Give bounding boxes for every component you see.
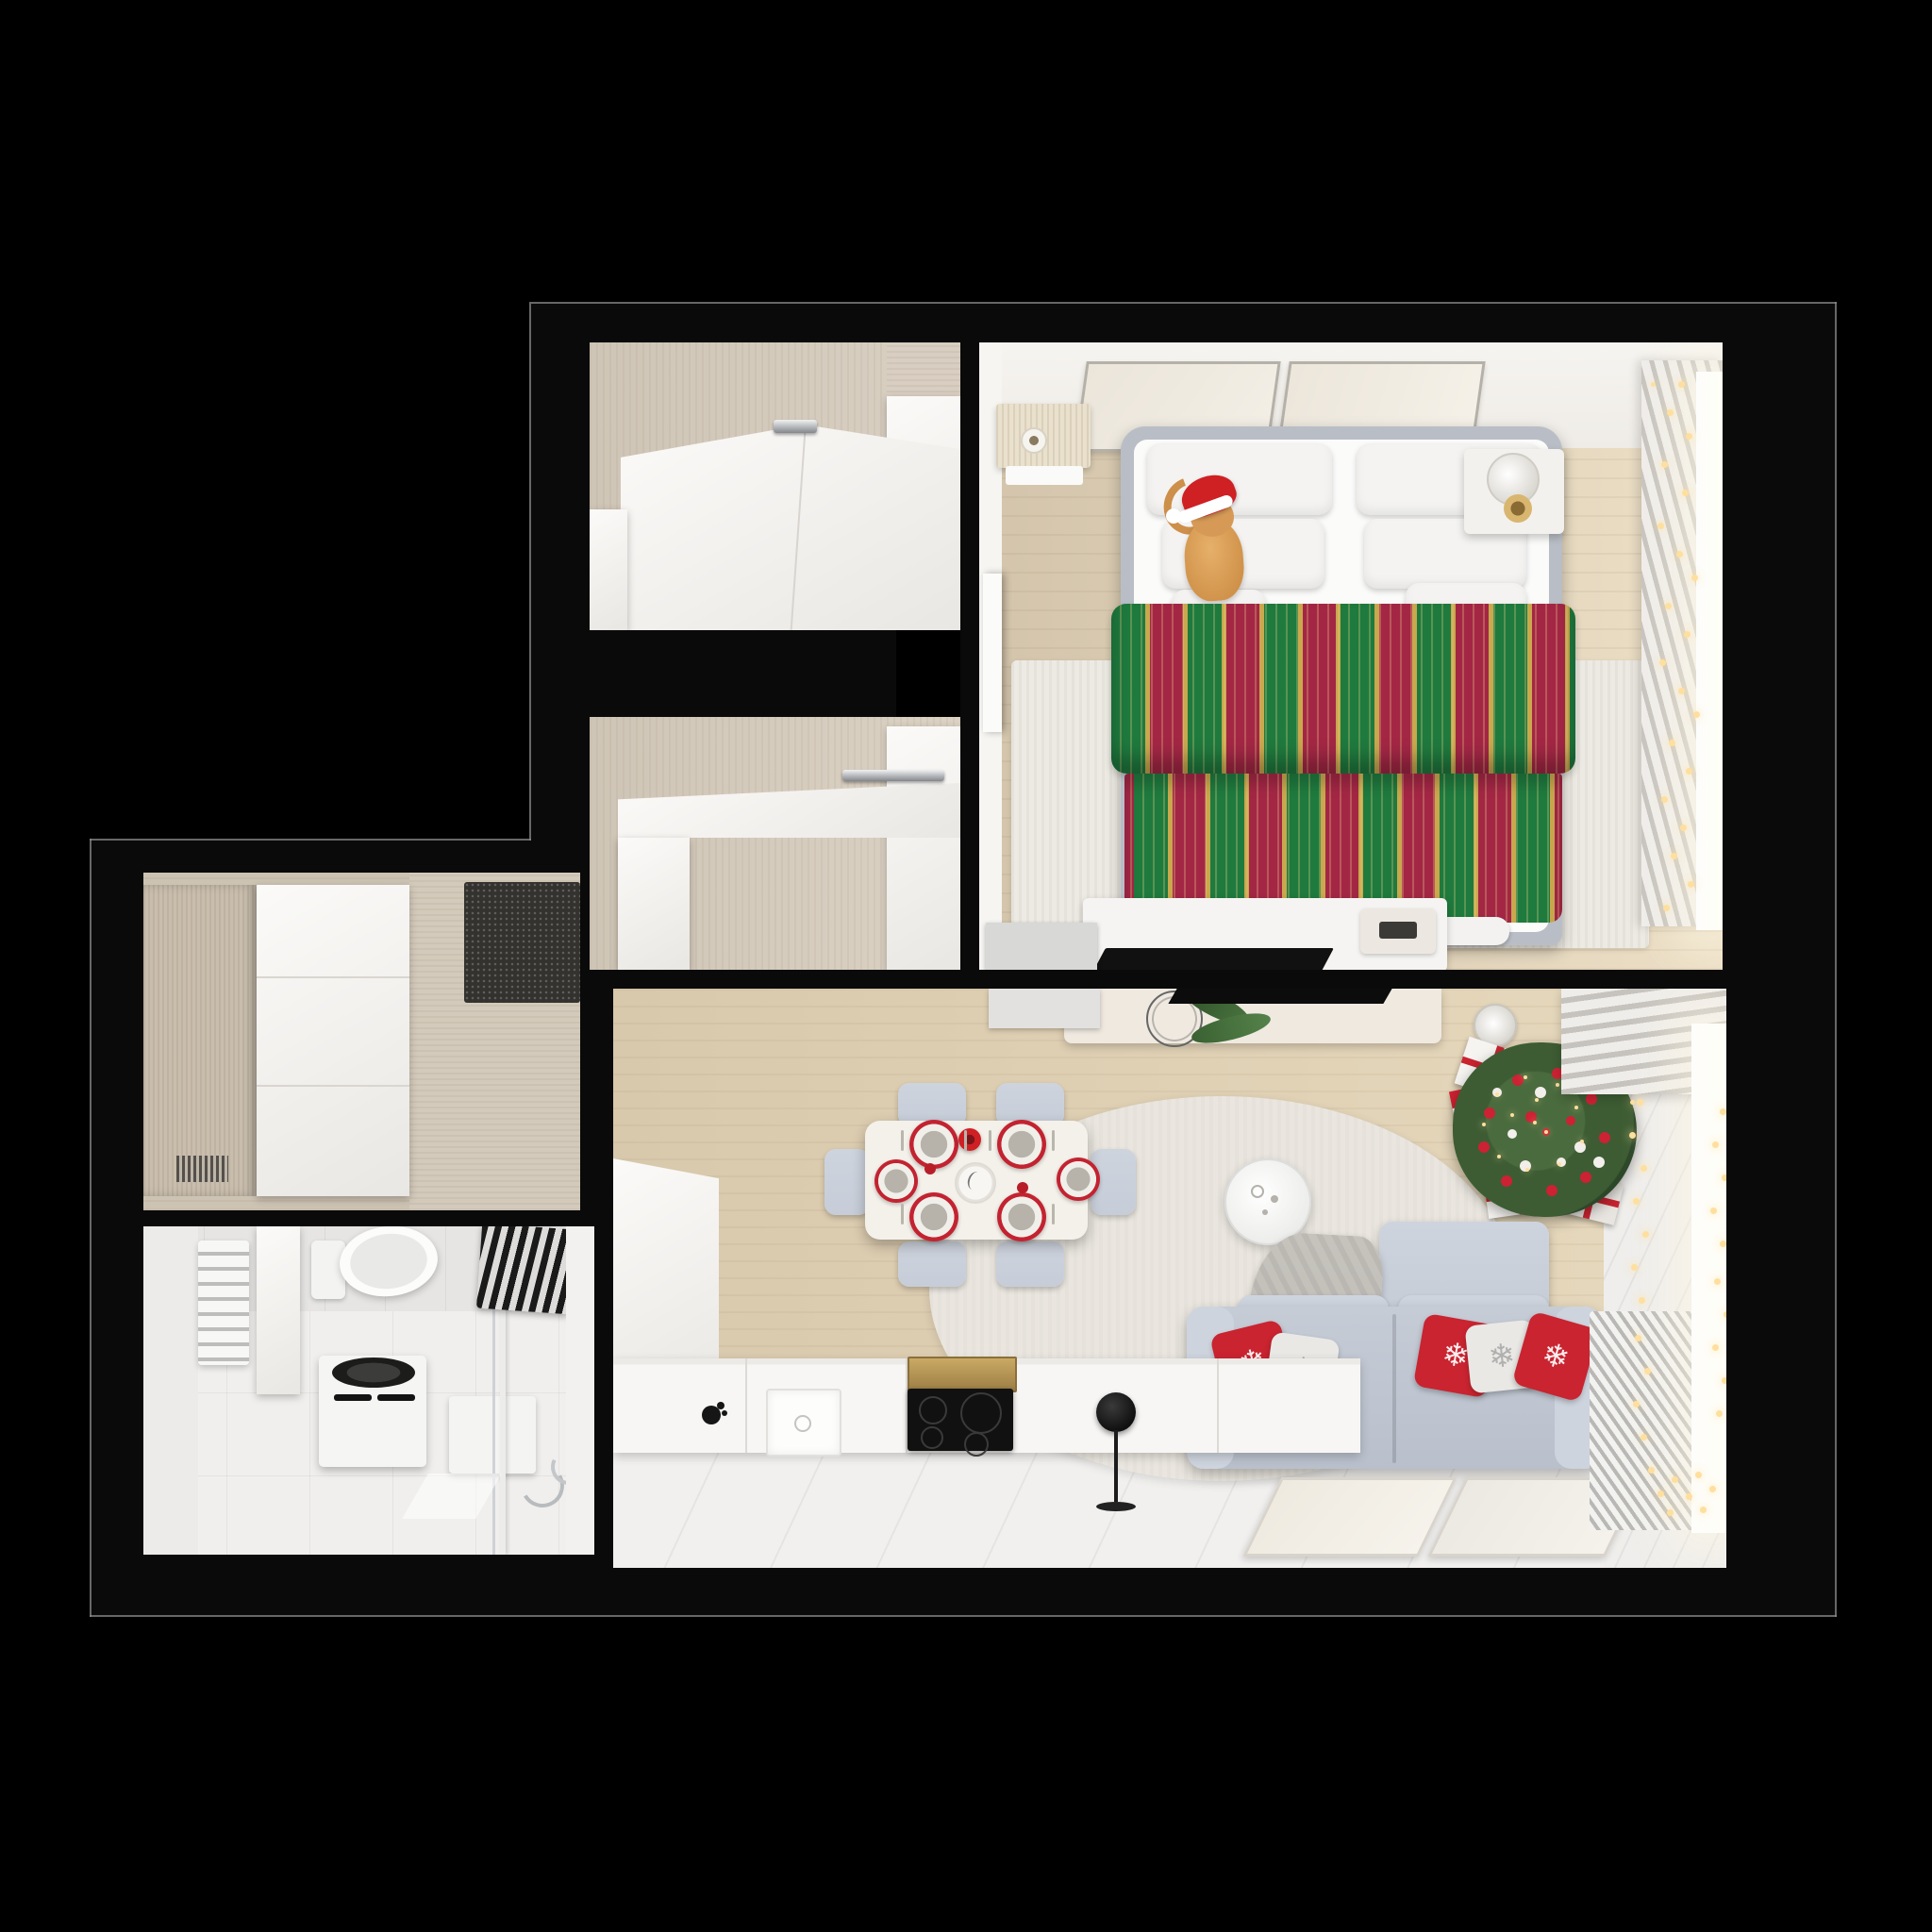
dining-chair [996,1241,1064,1287]
wall-between-closets [571,630,896,717]
plate-red-rim [909,1192,958,1241]
wall-hall-bath [143,1210,580,1226]
washer-slot [377,1394,415,1401]
tv-over-wall [1168,989,1391,1004]
cutlery-icon [989,1130,991,1151]
wardrobe-seam [257,976,409,978]
cutlery-icon [1052,1204,1055,1224]
wall-hall-top [92,841,531,873]
clock-display [1379,922,1417,939]
wall-living-bottom [594,1568,1726,1615]
cat-with-santa-hat [1158,475,1262,602]
plate-red-rim [997,1192,1046,1241]
santa-hat-pom [1166,508,1181,524]
wall-bath-bottom [92,1555,594,1615]
plate-red-rim [874,1159,918,1203]
closet2-desk-top [618,783,960,838]
tv-flat [1092,948,1334,970]
floor-plan-canvas: ❄ ❄ ❄ ❄ ❄ [0,0,1932,1932]
wall-hall-left [92,841,143,1615]
dining-chair [898,1241,966,1287]
outline-bottom [90,1615,1837,1617]
holiday-blanket-fold [1111,604,1575,774]
room-bedroom [979,342,1723,970]
plate-red-rim [1057,1158,1100,1201]
hall-wardrobe-front [257,885,409,1196]
room-bathroom [143,1226,594,1555]
red-candle [958,1128,981,1151]
window-garland-lights [1651,382,1656,387]
closet2-handle [842,770,944,781]
red-decor-dot [924,1163,936,1174]
living-window [1691,1024,1726,1533]
burner-icon [964,1432,989,1457]
wardrobe-handle [774,420,817,433]
washer-slot [334,1394,372,1401]
counter-seam [1217,1358,1219,1453]
bedroom-door [983,574,1002,732]
black-faucet-icon [702,1406,721,1424]
black-floor-lamp [1096,1392,1136,1432]
hall-wardrobe-side-panel [143,885,257,1196]
coffee-table [1224,1158,1311,1245]
bath-left-tiles [143,1226,198,1555]
closet2-side-cabinet [887,726,960,970]
counter-seam [745,1358,747,1453]
wall-right [1723,304,1835,1615]
floor-sheen [402,1474,502,1519]
closet-left-column [590,509,627,630]
bedroom-window [1696,372,1723,930]
nightstand-left-base [1006,466,1083,485]
wall-bedroom-living [590,970,1726,991]
tree-lights [1533,1121,1537,1124]
outline-right [1835,302,1837,1617]
cooker-hood [908,1357,1017,1392]
coffee-table-items [1251,1185,1264,1198]
striped-towel [476,1226,575,1314]
burner-icon [919,1396,947,1424]
bedroom-door-open [986,923,1097,970]
plate-red-rim [909,1120,958,1169]
closet-wardrobe [621,425,960,630]
closet2-desk-column [618,838,690,970]
bath-right-wall-strip [566,1226,594,1555]
burner-icon [960,1392,1002,1434]
sofa-seat-split [1392,1314,1396,1463]
sink-drain-icon [794,1415,811,1432]
candle-icon [1504,494,1532,523]
wardrobe-seam [257,1085,409,1087]
room-living-kitchen: ❄ ❄ ❄ ❄ ❄ [613,989,1726,1568]
mug-icon [1021,427,1047,454]
plate-red-rim [997,1120,1046,1169]
cutlery-icon [901,1204,904,1224]
open-door-shadow [989,989,1100,1028]
room-storage-closet [590,717,960,970]
lamp-base [1096,1502,1136,1511]
room-hallway [143,873,580,1210]
lamp-stem [1114,1430,1118,1502]
room-walk-in-closet [590,342,960,630]
bath-tall-cabinet [257,1226,300,1394]
washer-drum [332,1357,415,1388]
cutlery-icon [1052,1130,1055,1151]
wall-top [531,304,1835,342]
cutlery-icon [964,1130,967,1151]
tree-ornaments [1542,1128,1550,1136]
wall-closet-bedroom [960,342,979,989]
window-string-lights [1630,1100,1635,1105]
cutlery-icon [901,1130,904,1151]
burner-icon [921,1426,943,1449]
dining-chair [824,1149,870,1215]
red-decor-dot [1017,1182,1028,1193]
living-radiator [1590,1311,1701,1530]
hall-wardrobe-vent [176,1156,228,1182]
doormat [464,882,580,1003]
towel-radiator [198,1241,249,1365]
